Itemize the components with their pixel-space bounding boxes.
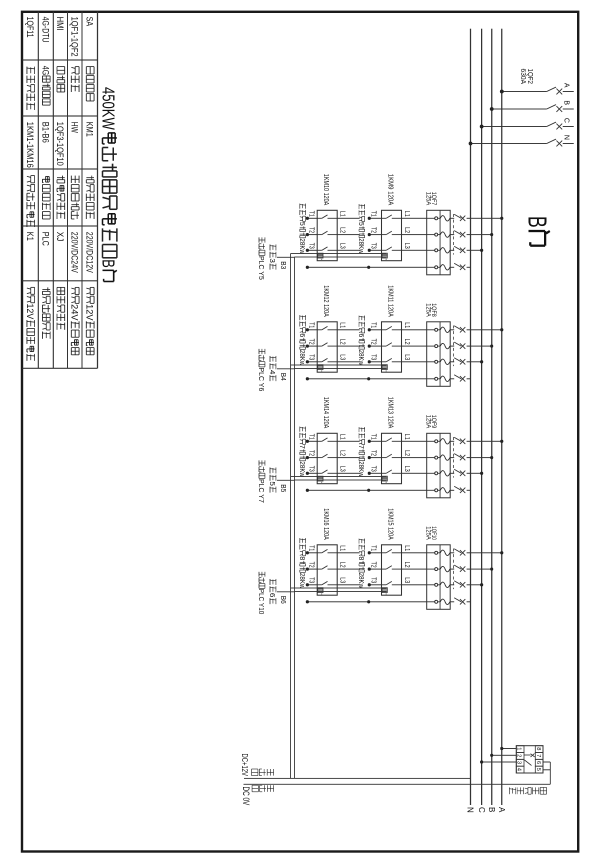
svg-text:T1: T1 [308,211,317,217]
svg-text:L1: L1 [403,322,412,328]
svg-text:28Kw: 28Kw [357,350,364,366]
svg-text:B: B [523,216,553,228]
svg-text:1KM9 120A: 1KM9 120A [387,174,394,206]
svg-text:T3: T3 [308,577,317,583]
svg-text:PLC Y5: PLC Y5 [257,256,266,280]
svg-text:T2: T2 [308,227,317,233]
svg-text:L2: L2 [338,450,347,456]
svg-text:5: 5 [535,768,541,771]
svg-text:KM1: KM1 [84,122,95,137]
svg-text:L2: L2 [403,562,412,568]
svg-text:T2: T2 [369,562,378,568]
svg-text:T2: T2 [369,227,378,233]
svg-text:1QF1-1QF2: 1QF1-1QF2 [69,17,80,57]
svg-text:1QF3-1QF10: 1QF3-1QF10 [55,122,66,166]
svg-text:T2: T2 [308,339,317,345]
svg-text:8: 8 [298,556,305,560]
svg-text:12V: 12V [84,304,95,321]
svg-text:L1: L1 [338,211,347,217]
svg-text:125A: 125A [425,415,432,429]
svg-text:3: 3 [516,761,522,764]
svg-text:T2: T2 [369,339,378,345]
svg-text:DC 0V: DC 0V [241,787,251,806]
svg-text:1KM12 120A: 1KM12 120A [322,285,329,317]
svg-text:T1: T1 [308,322,317,328]
svg-text:DC+12V: DC+12V [240,754,250,777]
svg-text:5: 5 [357,222,364,226]
svg-text:28Kw: 28Kw [357,573,364,589]
svg-text:1KM13 120A: 1KM13 120A [387,397,394,429]
svg-text:L3: L3 [403,243,412,249]
svg-text:7: 7 [535,754,541,757]
svg-text:T3: T3 [308,354,317,360]
svg-text:T3: T3 [369,243,378,249]
svg-text:PLC: PLC [40,232,51,246]
svg-text:N: N [466,807,475,813]
svg-text:T2: T2 [308,450,317,456]
svg-text:T3: T3 [308,243,317,249]
svg-text:630A: 630A [519,69,528,85]
svg-text:L3: L3 [403,466,412,472]
svg-text:125A: 125A [425,526,432,540]
svg-text:L1: L1 [403,211,412,217]
svg-text:N: N [562,135,569,140]
svg-text:T3: T3 [308,466,317,472]
svg-text:B: B [99,259,119,268]
svg-text:T1: T1 [308,545,317,551]
svg-text:B5: B5 [279,484,286,492]
svg-text:6: 6 [268,593,277,598]
svg-text:PLC Y10: PLC Y10 [257,589,266,614]
svg-text:XJ: XJ [55,232,66,242]
svg-text:K1: K1 [25,232,36,241]
svg-text:5: 5 [268,481,277,486]
svg-text:C: C [562,118,569,123]
svg-text:8: 8 [357,557,364,561]
svg-text:A: A [562,83,569,88]
svg-text:L3: L3 [338,354,347,360]
svg-text:2: 2 [516,754,522,757]
svg-text:PLC Y6: PLC Y6 [257,368,266,392]
svg-text:1KM1-1KM16: 1KM1-1KM16 [25,122,36,168]
svg-text:6: 6 [535,761,541,764]
svg-text:28Kw: 28Kw [298,573,305,589]
svg-text:B4: B4 [279,373,286,381]
svg-text:4G: 4G [40,66,51,75]
svg-text:T1: T1 [369,322,378,328]
svg-text:A: A [497,807,506,813]
svg-text:L2: L2 [338,227,347,233]
svg-text:L3: L3 [338,577,347,583]
svg-text:1KM11 120A: 1KM11 120A [387,285,394,317]
svg-text:1: 1 [516,747,522,750]
svg-text:L1: L1 [338,434,347,440]
svg-text:125A: 125A [425,192,432,206]
svg-text:5: 5 [298,222,305,226]
svg-text:T3: T3 [369,354,378,360]
svg-text:T1: T1 [369,211,378,217]
svg-text:L3: L3 [403,354,412,360]
svg-text:T2: T2 [308,562,317,568]
svg-text:6: 6 [298,333,305,337]
svg-text:7: 7 [357,445,364,449]
svg-text:B3: B3 [279,261,286,269]
svg-text:7: 7 [298,445,305,449]
svg-text:1KM14 120A: 1KM14 120A [322,397,329,429]
svg-text:L1: L1 [403,545,412,551]
svg-text:B: B [562,100,569,105]
svg-text:C: C [477,807,486,813]
svg-text:L2: L2 [403,339,412,345]
svg-text:12V: 12V [25,304,36,320]
svg-text:SA: SA [84,17,95,27]
svg-text:24V: 24V [69,304,80,321]
svg-text:B: B [487,807,496,812]
svg-text:L2: L2 [338,339,347,345]
svg-text:8: 8 [535,747,541,750]
svg-text:220V/DC24V: 220V/DC24V [69,232,80,274]
svg-text:450KW: 450KW [99,87,119,130]
svg-text:220V/DC12V: 220V/DC12V [84,232,95,274]
svg-text:HW: HW [69,122,80,133]
svg-text:1QF11: 1QF11 [25,17,36,38]
svg-text:28Kw: 28Kw [298,350,305,366]
svg-text:L3: L3 [338,466,347,472]
svg-text:PLC Y7: PLC Y7 [257,479,266,503]
svg-text:28Kw: 28Kw [298,238,305,254]
svg-text:L3: L3 [338,243,347,249]
svg-text:L1: L1 [338,322,347,328]
svg-text:B6: B6 [279,596,286,604]
svg-text:T1: T1 [369,434,378,440]
svg-text:4G-DTU: 4G-DTU [40,17,51,43]
svg-text:T1: T1 [308,434,317,440]
svg-text:28Kw: 28Kw [357,461,364,477]
svg-text:T2: T2 [369,450,378,456]
svg-text:HMI: HMI [55,17,66,31]
svg-text:L3: L3 [403,577,412,583]
svg-text:L2: L2 [338,562,347,568]
svg-text:3: 3 [268,258,277,263]
svg-text:T3: T3 [369,577,378,583]
svg-text:L2: L2 [403,227,412,233]
svg-text:4: 4 [268,370,277,375]
svg-text:L2: L2 [403,450,412,456]
svg-text:T3: T3 [369,466,378,472]
svg-text:L1: L1 [403,434,412,440]
svg-text:28Kw: 28Kw [298,461,305,477]
svg-text:1KM16 120A: 1KM16 120A [322,508,329,540]
svg-text:6: 6 [357,334,364,338]
svg-text:L1: L1 [338,545,347,551]
svg-text:B1-B6: B1-B6 [40,122,51,143]
svg-text:T1: T1 [369,545,378,551]
svg-text:1KM15 120A: 1KM15 120A [387,508,394,540]
svg-text:125A: 125A [425,303,432,317]
svg-text:28Kw: 28Kw [357,238,364,254]
svg-text:1KM10 120A: 1KM10 120A [322,174,329,206]
